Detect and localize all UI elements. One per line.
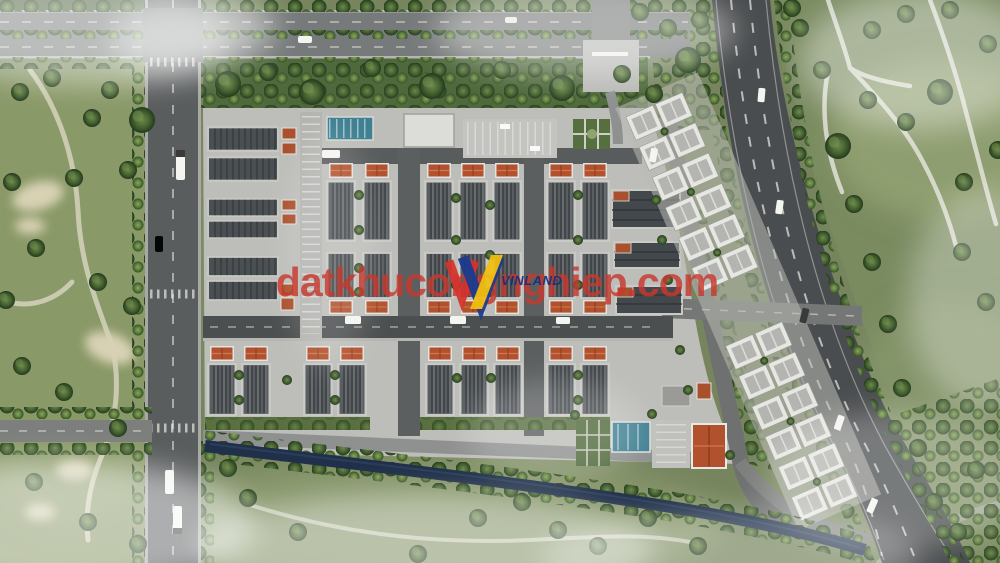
formal-garden — [573, 119, 610, 149]
logo-brand-text: VINLAND — [501, 273, 562, 288]
parking-lot — [463, 119, 557, 158]
access-road-west — [0, 407, 152, 455]
masterplan-render: datkhucongnghiep.com VINLAND — [0, 0, 1000, 563]
office-building — [404, 114, 454, 147]
scene-canvas: datkhucongnghiep.com VINLAND — [0, 0, 1000, 563]
clubhouse-red-roof — [692, 424, 726, 468]
